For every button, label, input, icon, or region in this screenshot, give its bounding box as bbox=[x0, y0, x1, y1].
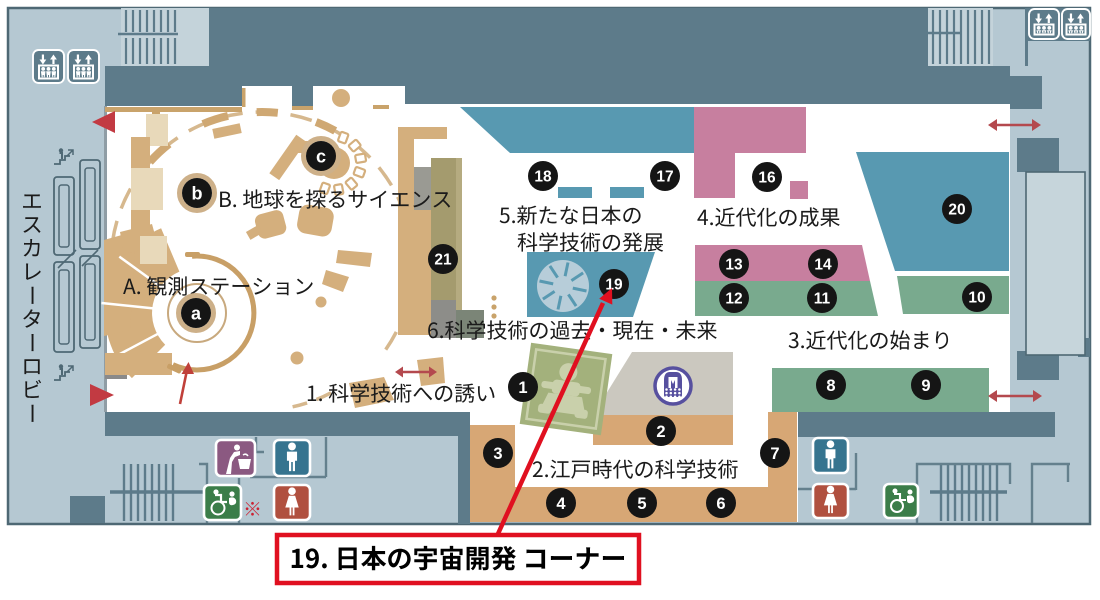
svg-text:20: 20 bbox=[948, 202, 965, 219]
svg-text:18: 18 bbox=[534, 169, 552, 186]
svg-text:16: 16 bbox=[758, 170, 776, 187]
svg-text:9: 9 bbox=[921, 377, 930, 395]
svg-text:13: 13 bbox=[725, 257, 743, 274]
svg-text:b: b bbox=[192, 183, 203, 203]
svg-text:a: a bbox=[191, 303, 202, 323]
svg-text:c: c bbox=[316, 146, 326, 166]
svg-text:8: 8 bbox=[826, 377, 835, 395]
svg-text:1: 1 bbox=[518, 379, 527, 397]
svg-text:4: 4 bbox=[556, 495, 566, 513]
svg-text:12: 12 bbox=[725, 291, 742, 308]
svg-text:19: 19 bbox=[605, 277, 623, 294]
svg-text:6: 6 bbox=[716, 495, 725, 513]
svg-text:7: 7 bbox=[770, 445, 779, 463]
svg-text:11: 11 bbox=[814, 291, 831, 308]
svg-text:2: 2 bbox=[656, 423, 665, 441]
svg-text:17: 17 bbox=[656, 169, 673, 186]
svg-text:5: 5 bbox=[637, 495, 646, 513]
svg-text:21: 21 bbox=[434, 252, 452, 269]
svg-text:14: 14 bbox=[814, 257, 832, 274]
svg-text:10: 10 bbox=[968, 290, 985, 307]
svg-text:3: 3 bbox=[493, 445, 502, 463]
